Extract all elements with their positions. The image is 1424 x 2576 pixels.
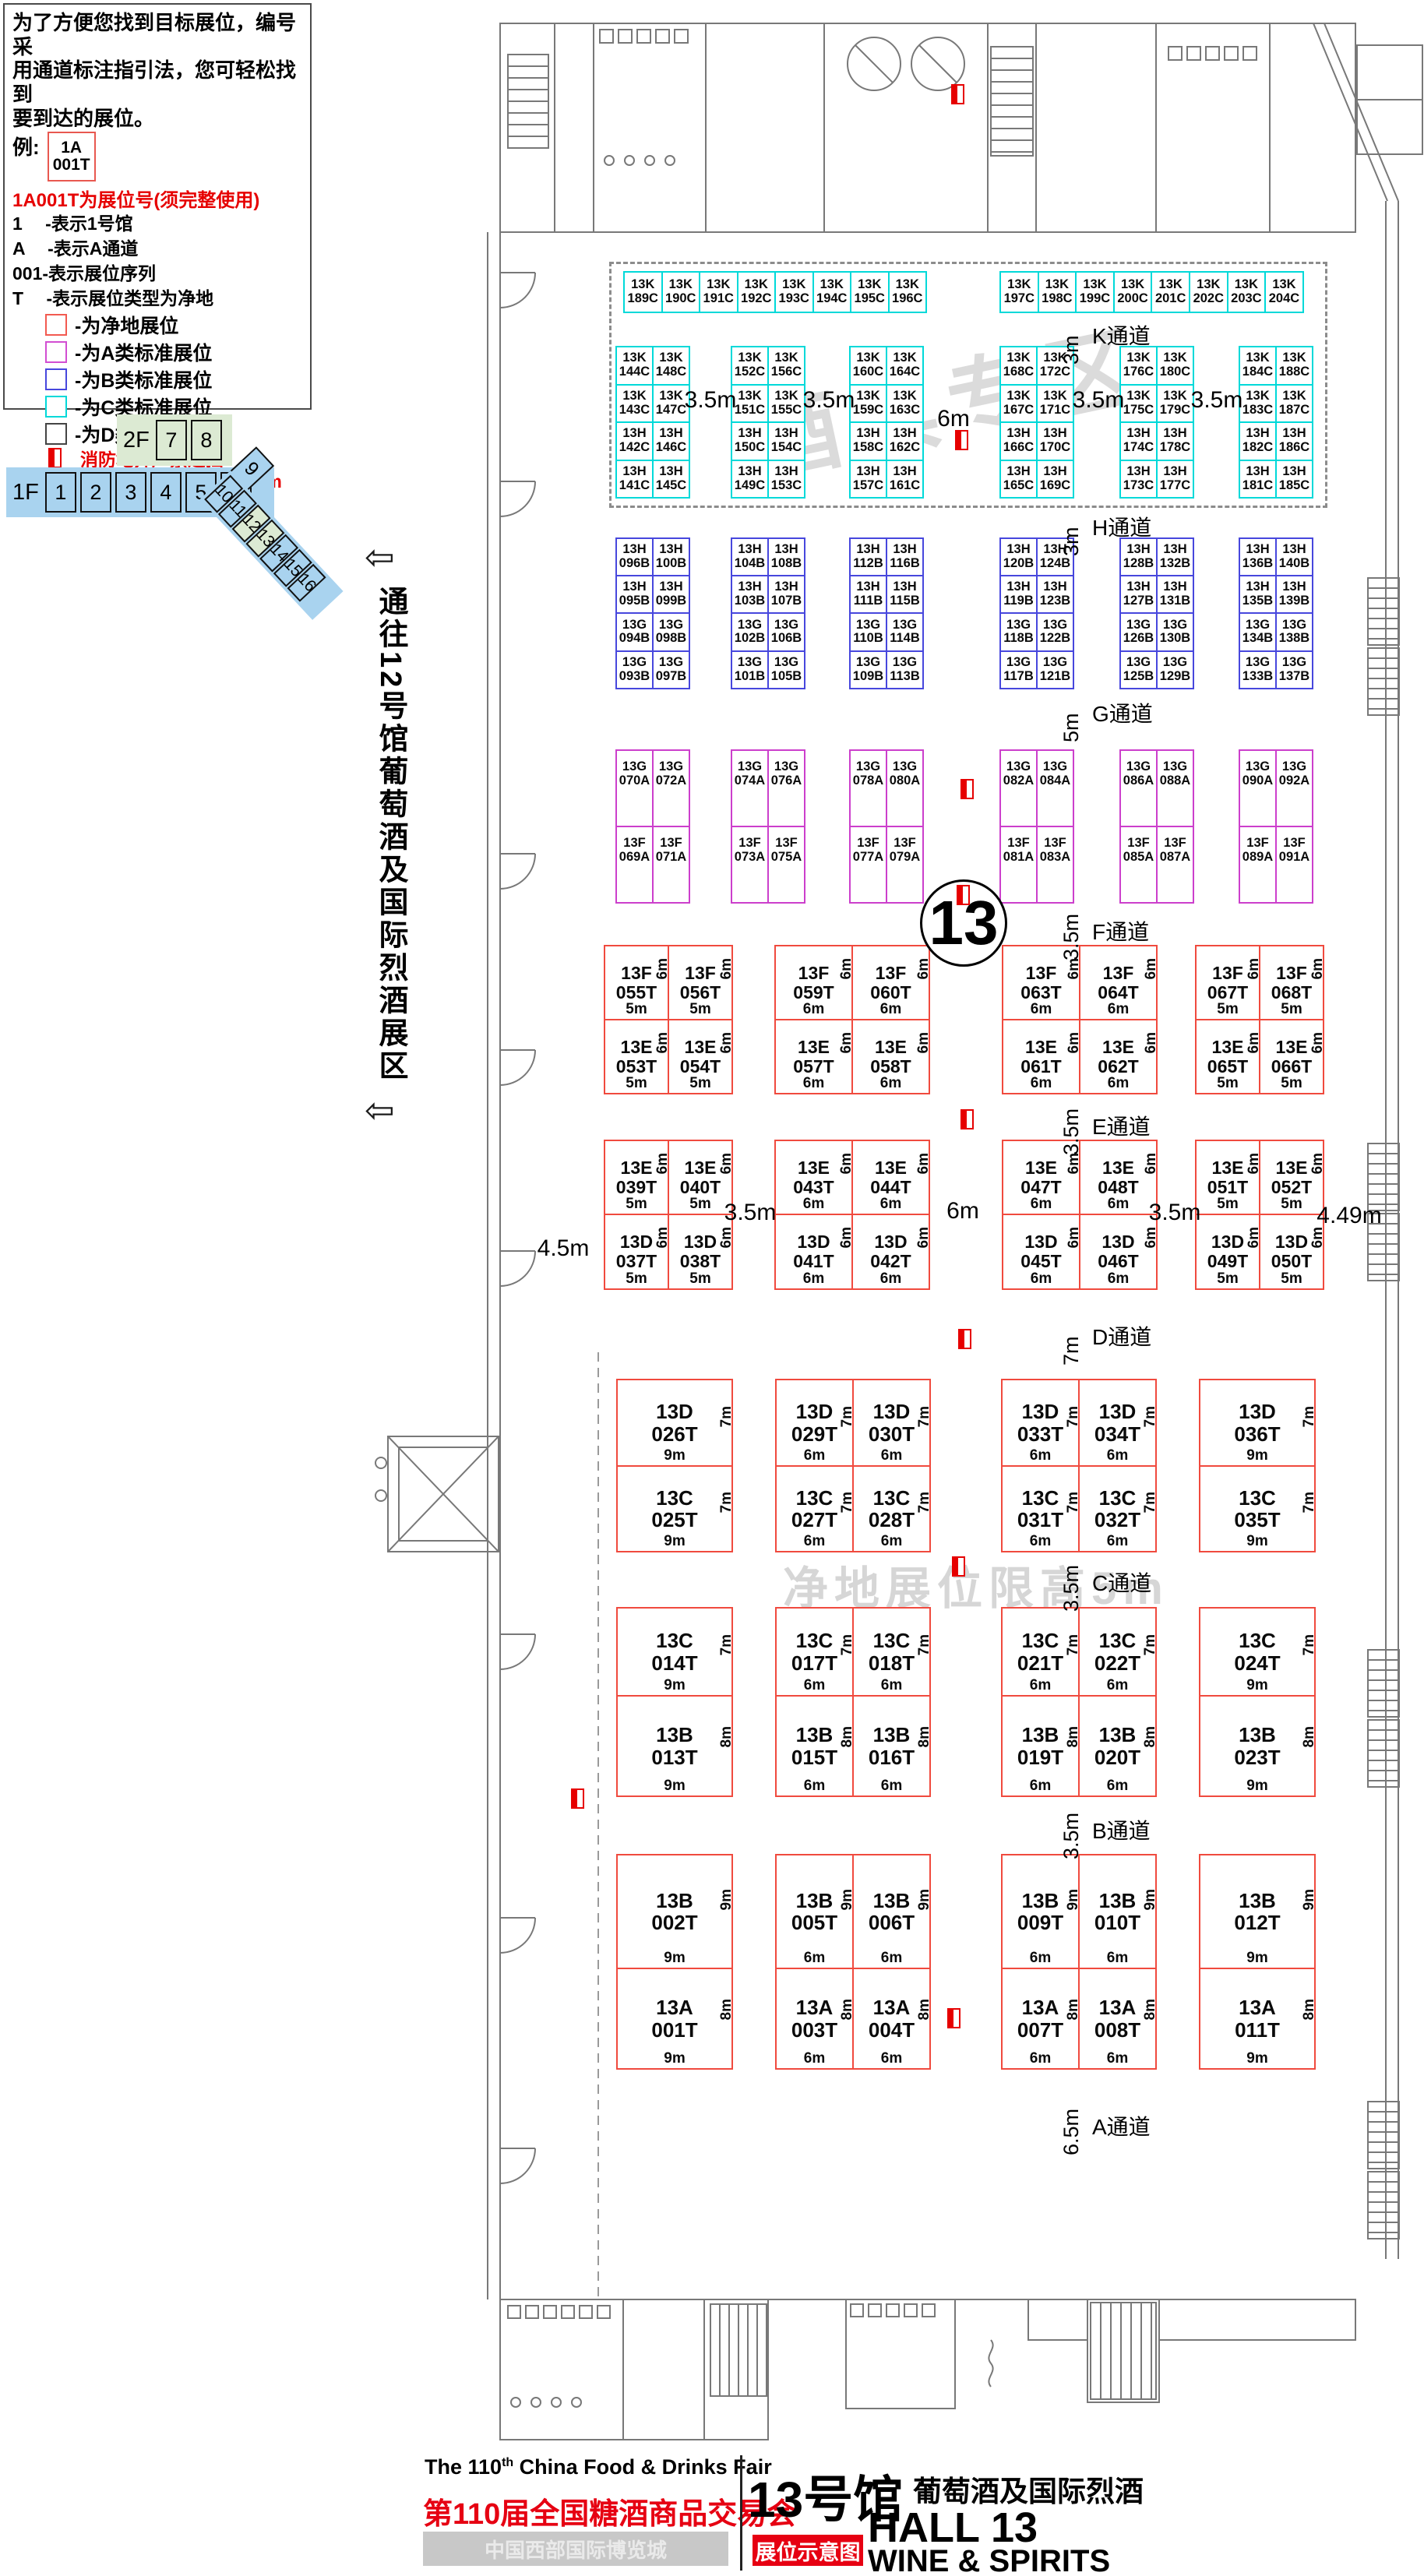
- booth-13B-010T[interactable]: 13B010T6m9m: [1078, 1854, 1157, 1969]
- booth-13K-193C[interactable]: 13K193C: [774, 271, 814, 313]
- booth-width-label: 9m: [618, 1678, 731, 1693]
- booth-13B-020T[interactable]: 13B020T6m8m: [1078, 1695, 1157, 1797]
- booth-height-label: 6m: [1310, 1227, 1325, 1248]
- booth-13D-046T[interactable]: 13D046T6m6m: [1079, 1214, 1158, 1290]
- booth-label: 13K189C: [628, 278, 658, 306]
- booth-13H-099B[interactable]: 13H099B: [652, 575, 690, 614]
- booth-width-label: 6m: [776, 1271, 851, 1286]
- booth-13G-126B[interactable]: 13G126B: [1119, 612, 1158, 651]
- booth-13C-021T[interactable]: 13C021T6m7m: [1001, 1607, 1080, 1697]
- booth-13H-181C[interactable]: 13H181C: [1239, 460, 1277, 499]
- booth-label: 13B012T: [1234, 1890, 1280, 1933]
- booth-13B-002T[interactable]: 13B002T9m9m: [616, 1854, 733, 1969]
- booth-13F-068T[interactable]: 13F068T5m6m: [1259, 945, 1324, 1020]
- booth-13G-105B[interactable]: 13G105B: [767, 650, 805, 689]
- booth-13F-064T[interactable]: 13F064T6m6m: [1079, 945, 1158, 1020]
- booth-13H-170C[interactable]: 13H170C: [1036, 421, 1074, 461]
- booth-13C-017T[interactable]: 13C017T6m7m: [775, 1607, 854, 1697]
- minimap-floor2: 2F 78: [117, 414, 232, 466]
- booth-13K-175C[interactable]: 13K175C: [1119, 384, 1158, 424]
- booth-13F-073A[interactable]: 13F073A: [731, 826, 769, 904]
- booth-13D-033T[interactable]: 13D033T6m7m: [1001, 1379, 1080, 1467]
- booth-13K-180C[interactable]: 13K180C: [1156, 346, 1194, 386]
- booth-label: 13F059T: [793, 964, 834, 1003]
- booth-13E-040T[interactable]: 13E040T5m6m: [668, 1140, 733, 1215]
- left-arrow-icon: ⇦: [365, 536, 395, 578]
- booth-13G-088A[interactable]: 13G088A: [1156, 749, 1194, 827]
- booth-13H-132B[interactable]: 13H132B: [1156, 537, 1194, 576]
- booth-13G-113B[interactable]: 13G113B: [886, 650, 924, 689]
- booth-height-label: 8m: [719, 1726, 734, 1747]
- booth-13H-161C[interactable]: 13H161C: [886, 460, 924, 499]
- booth-13F-075A[interactable]: 13F075A: [767, 826, 805, 904]
- booth-13G-098B[interactable]: 13G098B: [652, 612, 690, 651]
- booth-13H-150C[interactable]: 13H150C: [731, 421, 769, 461]
- booth-13H-112B[interactable]: 13H112B: [849, 537, 887, 576]
- booth-width-label: 5m: [605, 1271, 668, 1286]
- booth-13K-194C[interactable]: 13K194C: [812, 271, 852, 313]
- booth-label: 13C028T: [869, 1487, 915, 1531]
- booth-label: 13H166C: [1003, 427, 1034, 455]
- booth-13E-043T[interactable]: 13E043T6m6m: [774, 1140, 853, 1215]
- booth-label: 13E043T: [793, 1158, 834, 1197]
- booth-label: 13K196C: [892, 278, 922, 306]
- booth-13B-013T[interactable]: 13B013T9m8m: [616, 1695, 733, 1797]
- booth-13H-095B[interactable]: 13H095B: [615, 575, 654, 614]
- booth-13H-153C[interactable]: 13H153C: [767, 460, 805, 499]
- booth-width-label: 9m: [1200, 1951, 1314, 1965]
- booth-13G-074A[interactable]: 13G074A: [731, 749, 769, 827]
- booth-13A-008T[interactable]: 13A008T6m8m: [1078, 1968, 1157, 2070]
- booth-13E-062T[interactable]: 13E062T6m6m: [1079, 1019, 1158, 1094]
- booth-13H-119B[interactable]: 13H119B: [999, 575, 1038, 614]
- booth-label: 13G106B: [771, 618, 802, 647]
- booth-width-label: 6m: [1003, 1448, 1078, 1463]
- booth-13G-078A[interactable]: 13G078A: [849, 749, 887, 827]
- minimap-hall-2[interactable]: 2: [80, 472, 111, 513]
- booth-width-label: 5m: [669, 1271, 731, 1286]
- booth-13G-137B[interactable]: 13G137B: [1275, 650, 1313, 689]
- booth-13H-131B[interactable]: 13H131B: [1156, 575, 1194, 614]
- booth-13H-185C[interactable]: 13H185C: [1275, 460, 1313, 499]
- booth-label: 13H141C: [619, 465, 650, 493]
- booth-13K-202C[interactable]: 13K202C: [1189, 271, 1228, 313]
- booth-13G-093B[interactable]: 13G093B: [615, 650, 654, 689]
- booth-13H-142C[interactable]: 13H142C: [615, 421, 654, 461]
- booth-13K-188C[interactable]: 13K188C: [1275, 346, 1313, 386]
- booth-13H-116B[interactable]: 13H116B: [886, 537, 924, 576]
- booth-13E-066T[interactable]: 13E066T5m6m: [1259, 1019, 1324, 1094]
- booth-label: 13K147C: [656, 389, 686, 418]
- gap-dim-label: 4.49m: [1316, 1203, 1381, 1229]
- booth-13A-007T[interactable]: 13A007T6m8m: [1001, 1968, 1080, 2070]
- booth-label: 13H178C: [1160, 427, 1190, 455]
- booth-13H-100B[interactable]: 13H100B: [652, 537, 690, 576]
- booth-label: 13F071A: [656, 837, 686, 865]
- booth-label: 13F073A: [735, 837, 765, 865]
- booth-label: 13K203C: [1231, 278, 1261, 306]
- booth-13C-035T[interactable]: 13C035T9m7m: [1199, 1465, 1316, 1552]
- booth-13B-006T[interactable]: 13B006T6m9m: [852, 1854, 931, 1969]
- booth-13K-167C[interactable]: 13K167C: [999, 384, 1038, 424]
- booth-width-label: 9m: [1200, 2051, 1314, 2066]
- booth-13G-122B[interactable]: 13G122B: [1036, 612, 1074, 651]
- booth-width-label: 5m: [1260, 1196, 1323, 1211]
- booth-13A-004T[interactable]: 13A004T6m8m: [852, 1968, 931, 2070]
- booth-13K-200C[interactable]: 13K200C: [1113, 271, 1153, 313]
- booth-13K-155C[interactable]: 13K155C: [767, 384, 805, 424]
- booth-13H-174C[interactable]: 13H174C: [1119, 421, 1158, 461]
- booth-13K-171C[interactable]: 13K171C: [1036, 384, 1074, 424]
- booth-width-label: 6m: [776, 1002, 851, 1017]
- booth-13K-168C[interactable]: 13K168C: [999, 346, 1038, 386]
- booth-label: 13G092A: [1279, 760, 1309, 788]
- booth-13H-166C[interactable]: 13H166C: [999, 421, 1038, 461]
- booth-13B-016T[interactable]: 13B016T6m8m: [852, 1695, 931, 1797]
- booth-13F-079A[interactable]: 13F079A: [886, 826, 924, 904]
- booth-height-label: 6m: [1144, 1227, 1158, 1248]
- booth-label: 13H154C: [771, 427, 802, 455]
- booth-label: 13G114B: [890, 618, 920, 647]
- booth-13F-085A[interactable]: 13F085A: [1119, 826, 1158, 904]
- booth-13E-048T[interactable]: 13E048T6m6m: [1079, 1140, 1158, 1215]
- booth-label: 13F087A: [1160, 837, 1190, 865]
- booth-13F-055T[interactable]: 13F055T5m6m: [604, 945, 669, 1020]
- booth-label: 13H145C: [656, 465, 686, 493]
- minimap-hall-4[interactable]: 4: [150, 472, 182, 513]
- booth-height-label: 6m: [916, 1032, 931, 1053]
- booth-13H-108B[interactable]: 13H108B: [767, 537, 805, 576]
- booth-13G-101B[interactable]: 13G101B: [731, 650, 769, 689]
- booth-width-label: 6m: [1003, 1271, 1079, 1286]
- booth-13G-094B[interactable]: 13G094B: [615, 612, 654, 651]
- booth-13H-107B[interactable]: 13H107B: [767, 575, 805, 614]
- booth-13K-190C[interactable]: 13K190C: [661, 271, 701, 313]
- booth-13C-031T[interactable]: 13C031T6m7m: [1001, 1465, 1080, 1552]
- booth-13F-081A[interactable]: 13F081A: [999, 826, 1038, 904]
- booth-13C-028T[interactable]: 13C028T6m7m: [852, 1465, 931, 1552]
- booth-13F-071A[interactable]: 13F071A: [652, 826, 690, 904]
- booth-label: 13G137B: [1279, 656, 1309, 684]
- booth-13G-125B[interactable]: 13G125B: [1119, 650, 1158, 689]
- booth-13D-050T[interactable]: 13D050T5m6m: [1259, 1214, 1324, 1290]
- booth-13K-192C[interactable]: 13K192C: [737, 271, 777, 313]
- booth-13B-012T[interactable]: 13B012T9m9m: [1199, 1854, 1316, 1969]
- booth-13K-187C[interactable]: 13K187C: [1275, 384, 1313, 424]
- booth-13H-111B[interactable]: 13H111B: [849, 575, 887, 614]
- booth-label: 13E062T: [1098, 1038, 1138, 1077]
- booth-13E-051T[interactable]: 13E051T5m6m: [1195, 1140, 1260, 1215]
- booth-label: 13D026T: [651, 1401, 697, 1444]
- booth-label: 13K159C: [853, 389, 883, 418]
- booth-13K-191C[interactable]: 13K191C: [699, 271, 738, 313]
- booth-label: 13H181C: [1242, 465, 1273, 493]
- booth-13G-129B[interactable]: 13G129B: [1156, 650, 1194, 689]
- booth-13G-106B[interactable]: 13G106B: [767, 612, 805, 651]
- booth-13D-034T[interactable]: 13D034T6m7m: [1078, 1379, 1157, 1467]
- booth-label: 13G094B: [619, 618, 650, 647]
- booth-13K-184C[interactable]: 13K184C: [1239, 346, 1277, 386]
- booth-13E-052T[interactable]: 13E052T5m6m: [1259, 1140, 1324, 1215]
- booth-13K-143C[interactable]: 13K143C: [615, 384, 654, 424]
- booth-13F-067T[interactable]: 13F067T5m6m: [1195, 945, 1260, 1020]
- minimap-hall-8[interactable]: 8: [191, 420, 222, 460]
- minimap-hall-7[interactable]: 7: [156, 420, 187, 460]
- booth-13G-138B[interactable]: 13G138B: [1275, 612, 1313, 651]
- booth-label: 13K201C: [1155, 278, 1186, 306]
- booth-13D-045T[interactable]: 13D045T6m6m: [1002, 1214, 1080, 1290]
- booth-13C-025T[interactable]: 13C025T9m7m: [616, 1465, 733, 1552]
- booth-13D-041T[interactable]: 13D041T6m6m: [774, 1214, 853, 1290]
- booth-13E-065T[interactable]: 13E065T5m6m: [1195, 1019, 1260, 1094]
- booth-13G-130B[interactable]: 13G130B: [1156, 612, 1194, 651]
- booth-13G-117B[interactable]: 13G117B: [999, 650, 1038, 689]
- booth-13E-044T[interactable]: 13E044T6m6m: [851, 1140, 930, 1215]
- aisle-dim-label: 3m: [1059, 494, 1084, 556]
- fire-well-icon: [960, 779, 974, 799]
- booth-13F-077A[interactable]: 13F077A: [849, 826, 887, 904]
- booth-13H-162C[interactable]: 13H162C: [886, 421, 924, 461]
- booth-label: 13B019T: [1017, 1724, 1063, 1767]
- booth-width-label: 5m: [1260, 1002, 1323, 1017]
- booth-width-label: 6m: [1080, 1002, 1156, 1017]
- booth-13B-015T[interactable]: 13B015T6m8m: [775, 1695, 854, 1797]
- booth-13H-135B[interactable]: 13H135B: [1239, 575, 1277, 614]
- booth-label: 13B010T: [1094, 1890, 1140, 1933]
- booth-13E-053T[interactable]: 13E053T5m6m: [604, 1019, 669, 1094]
- booth-13E-054T[interactable]: 13E054T5m6m: [668, 1019, 733, 1094]
- booth-13B-023T[interactable]: 13B023T9m8m: [1199, 1695, 1316, 1797]
- booth-width-label: 6m: [853, 1076, 929, 1091]
- legend-panel: 为了方便您找到目标展位，编号采 用通道标注指引法，您可轻松找到 要到达的展位。 …: [3, 3, 312, 410]
- booth-width-label: 6m: [777, 1951, 852, 1965]
- booth-width-label: 5m: [1260, 1271, 1323, 1286]
- fire-well-icon: [947, 2008, 960, 2028]
- minimap-hall-3[interactable]: 3: [115, 472, 146, 513]
- booth-height-label: 7m: [1302, 1634, 1316, 1655]
- booth-13G-097B[interactable]: 13G097B: [652, 650, 690, 689]
- booth-13D-042T[interactable]: 13D042T6m6m: [851, 1214, 930, 1290]
- booth-width-label: 9m: [618, 1951, 731, 1965]
- booth-label: 13E051T: [1207, 1158, 1248, 1197]
- booth-13K-204C[interactable]: 13K204C: [1264, 271, 1304, 313]
- booth-13F-091A[interactable]: 13F091A: [1275, 826, 1313, 904]
- floor-plan-page: 酒具专区 净地展位限高5m 为了方便您找到目标展位，编号采 用通道标注指引法，您…: [0, 0, 1424, 2576]
- booth-label: 13K193C: [779, 278, 809, 306]
- booth-13D-036T[interactable]: 13D036T9m7m: [1199, 1379, 1316, 1467]
- booth-13H-169C[interactable]: 13H169C: [1036, 460, 1074, 499]
- gap-dim-label: 4.5m: [538, 1235, 590, 1262]
- booth-13K-156C[interactable]: 13K156C: [767, 346, 805, 386]
- gap-dim-label: 3.5m: [1149, 1200, 1201, 1226]
- booth-13D-038T[interactable]: 13D038T5m6m: [668, 1214, 733, 1290]
- booth-width-label: 5m: [1260, 1076, 1323, 1091]
- booth-width-label: 6m: [854, 1534, 929, 1549]
- fair-title-en-part: The 110: [425, 2455, 502, 2479]
- footer-divider: [740, 2455, 742, 2571]
- booth-label: 13K171C: [1040, 389, 1070, 418]
- booth-13H-146C[interactable]: 13H146C: [652, 421, 690, 461]
- booth-13E-057T[interactable]: 13E057T6m6m: [774, 1019, 853, 1094]
- booth-13B-019T[interactable]: 13B019T6m8m: [1001, 1695, 1080, 1797]
- booth-label: 13H165C: [1003, 465, 1034, 493]
- booth-label: 13G130B: [1160, 618, 1190, 647]
- booth-13H-096B[interactable]: 13H096B: [615, 537, 654, 576]
- booth-13B-005T[interactable]: 13B005T6m9m: [775, 1854, 854, 1969]
- booth-label: 13D033T: [1017, 1401, 1063, 1444]
- booth-13D-030T[interactable]: 13D030T6m7m: [852, 1379, 931, 1467]
- booth-13K-176C[interactable]: 13K176C: [1119, 346, 1158, 386]
- booth-13G-109B[interactable]: 13G109B: [849, 650, 887, 689]
- booth-width-label: 9m: [618, 1448, 731, 1463]
- booth-width-label: 5m: [605, 1196, 668, 1211]
- booth-13K-203C[interactable]: 13K203C: [1227, 271, 1267, 313]
- booth-13H-128B[interactable]: 13H128B: [1119, 537, 1158, 576]
- booth-13E-039T[interactable]: 13E039T5m6m: [604, 1140, 669, 1215]
- booth-13G-110B[interactable]: 13G110B: [849, 612, 887, 651]
- booth-13K-179C[interactable]: 13K179C: [1156, 384, 1194, 424]
- booth-13K-144C[interactable]: 13K144C: [615, 346, 654, 386]
- booth-13H-115B[interactable]: 13H115B: [886, 575, 924, 614]
- booth-13K-195C[interactable]: 13K195C: [850, 271, 890, 313]
- booth-13E-061T[interactable]: 13E061T6m6m: [1002, 1019, 1080, 1094]
- booth-13G-072A[interactable]: 13G072A: [652, 749, 690, 827]
- booth-13A-011T[interactable]: 13A011T9m8m: [1199, 1968, 1316, 2070]
- booth-13G-134B[interactable]: 13G134B: [1239, 612, 1277, 651]
- booth-13G-114B[interactable]: 13G114B: [886, 612, 924, 651]
- gap-dim-label: 3.5m: [803, 387, 855, 414]
- booth-label: 13H128B: [1123, 543, 1154, 571]
- booth-label: 13B002T: [651, 1890, 697, 1933]
- booth-13H-158C[interactable]: 13H158C: [849, 421, 887, 461]
- booth-label: 13E054T: [680, 1038, 721, 1077]
- booth-13B-009T[interactable]: 13B009T6m9m: [1001, 1854, 1080, 1969]
- booth-13C-024T[interactable]: 13C024T9m7m: [1199, 1607, 1316, 1697]
- booth-13G-133B[interactable]: 13G133B: [1239, 650, 1277, 689]
- booth-13F-089A[interactable]: 13F089A: [1239, 826, 1277, 904]
- booth-13H-127B[interactable]: 13H127B: [1119, 575, 1158, 614]
- booth-13H-177C[interactable]: 13H177C: [1156, 460, 1194, 499]
- booth-13K-196C[interactable]: 13K196C: [888, 271, 928, 313]
- legend-item: -为B类标准展位: [12, 365, 302, 393]
- booth-13A-001T[interactable]: 13A001T9m8m: [616, 1968, 733, 2070]
- booth-height-label: 7m: [917, 1406, 932, 1427]
- booth-label: 13A004T: [869, 1996, 915, 2040]
- booth-13F-060T[interactable]: 13F060T6m6m: [851, 945, 930, 1020]
- minimap-hall-1[interactable]: 1: [45, 472, 76, 513]
- booth-13C-022T[interactable]: 13C022T6m7m: [1078, 1607, 1157, 1697]
- fire-well-icon: [958, 1329, 971, 1349]
- booth-13H-154C[interactable]: 13H154C: [767, 421, 805, 461]
- booth-width-label: 6m: [1003, 1002, 1079, 1017]
- booth-13K-189C[interactable]: 13K189C: [623, 271, 663, 313]
- booth-label: 13G070A: [619, 760, 650, 788]
- booth-13K-148C[interactable]: 13K148C: [652, 346, 690, 386]
- booth-13G-082A[interactable]: 13G082A: [999, 749, 1038, 827]
- booth-13K-164C[interactable]: 13K164C: [886, 346, 924, 386]
- booth-label: 13G134B: [1242, 618, 1273, 647]
- booth-width-label: 6m: [777, 1778, 852, 1793]
- booth-13F-056T[interactable]: 13F056T5m6m: [668, 945, 733, 1020]
- corridor-note: 通往12号馆葡萄酒及国际烈酒展区: [369, 586, 412, 1123]
- booth-13K-160C[interactable]: 13K160C: [849, 346, 887, 386]
- booth-13H-145C[interactable]: 13H145C: [652, 460, 690, 499]
- booth-height-label: 7m: [1302, 1492, 1316, 1513]
- booth-13G-092A[interactable]: 13G092A: [1275, 749, 1313, 827]
- booth-13C-014T[interactable]: 13C014T9m7m: [616, 1607, 733, 1697]
- booth-13G-090A[interactable]: 13G090A: [1239, 749, 1277, 827]
- booth-13H-157C[interactable]: 13H157C: [849, 460, 887, 499]
- booth-label: 13C021T: [1017, 1630, 1063, 1673]
- booth-height-label: 6m: [916, 1227, 931, 1248]
- booth-13K-201C[interactable]: 13K201C: [1151, 271, 1190, 313]
- booth-13H-186C[interactable]: 13H186C: [1275, 421, 1313, 461]
- booth-13C-018T[interactable]: 13C018T6m7m: [852, 1607, 931, 1697]
- booth-13H-140B[interactable]: 13H140B: [1275, 537, 1313, 576]
- booth-label: 13G138B: [1279, 618, 1309, 647]
- booth-13H-178C[interactable]: 13H178C: [1156, 421, 1194, 461]
- booth-13H-165C[interactable]: 13H165C: [999, 460, 1038, 499]
- booth-label: 13H112B: [853, 543, 883, 571]
- booth-13H-120B[interactable]: 13H120B: [999, 537, 1038, 576]
- booth-13A-003T[interactable]: 13A003T6m8m: [775, 1968, 854, 2070]
- booth-13E-058T[interactable]: 13E058T6m6m: [851, 1019, 930, 1094]
- booth-label: 13B023T: [1234, 1724, 1280, 1767]
- booth-13C-027T[interactable]: 13C027T6m7m: [775, 1465, 854, 1552]
- booth-13G-118B[interactable]: 13G118B: [999, 612, 1038, 651]
- booth-13F-087A[interactable]: 13F087A: [1156, 826, 1194, 904]
- booth-13K-163C[interactable]: 13K163C: [886, 384, 924, 424]
- booth-13G-076A[interactable]: 13G076A: [767, 749, 805, 827]
- booth-13G-070A[interactable]: 13G070A: [615, 749, 654, 827]
- legend-item-label: -为B类标准展位: [75, 365, 212, 393]
- booth-13H-173C[interactable]: 13H173C: [1119, 460, 1158, 499]
- booth-width-label: 5m: [669, 1076, 731, 1091]
- booth-label: 13G113B: [890, 656, 920, 684]
- booth-13H-141C[interactable]: 13H141C: [615, 460, 654, 499]
- booth-13H-139B[interactable]: 13H139B: [1275, 575, 1313, 614]
- booth-13D-029T[interactable]: 13D029T6m7m: [775, 1379, 854, 1467]
- booth-label: 13G122B: [1040, 618, 1070, 647]
- booth-13K-197C[interactable]: 13K197C: [999, 271, 1039, 313]
- booth-width-label: 5m: [669, 1196, 731, 1211]
- booth-13G-080A[interactable]: 13G080A: [886, 749, 924, 827]
- booth-13G-102B[interactable]: 13G102B: [731, 612, 769, 651]
- booth-13H-123B[interactable]: 13H123B: [1036, 575, 1074, 614]
- booth-13D-037T[interactable]: 13D037T5m6m: [604, 1214, 669, 1290]
- booth-13C-032T[interactable]: 13C032T6m7m: [1078, 1465, 1157, 1552]
- booth-label: 13H103B: [735, 580, 765, 608]
- booth-13G-086A[interactable]: 13G086A: [1119, 749, 1158, 827]
- booth-13G-084A[interactable]: 13G084A: [1036, 749, 1074, 827]
- booth-13D-049T[interactable]: 13D049T5m6m: [1195, 1214, 1260, 1290]
- booth-height-label: 7m: [1302, 1406, 1316, 1427]
- booth-label: 13K195C: [855, 278, 885, 306]
- booth-13H-182C[interactable]: 13H182C: [1239, 421, 1277, 461]
- booth-13H-149C[interactable]: 13H149C: [731, 460, 769, 499]
- booth-13F-083A[interactable]: 13F083A: [1036, 826, 1074, 904]
- booth-label: 13F063T: [1020, 964, 1061, 1003]
- booth-13H-103B[interactable]: 13H103B: [731, 575, 769, 614]
- booth-13H-104B[interactable]: 13H104B: [731, 537, 769, 576]
- booth-label: 13K143C: [619, 389, 650, 418]
- booth-13K-183C[interactable]: 13K183C: [1239, 384, 1277, 424]
- booth-13K-152C[interactable]: 13K152C: [731, 346, 769, 386]
- booth-13H-136B[interactable]: 13H136B: [1239, 537, 1277, 576]
- booth-13F-069A[interactable]: 13F069A: [615, 826, 654, 904]
- booth-13F-059T[interactable]: 13F059T6m6m: [774, 945, 853, 1020]
- booth-13D-026T[interactable]: 13D026T9m7m: [616, 1379, 733, 1467]
